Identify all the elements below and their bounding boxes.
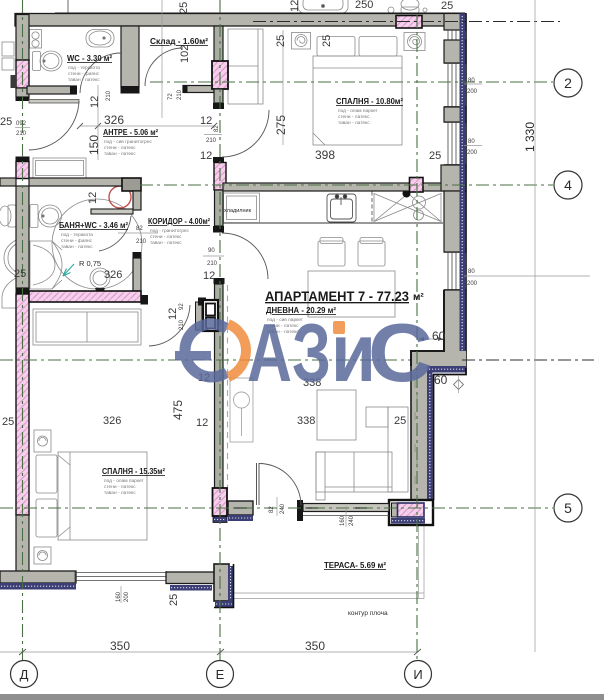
- svg-text:210: 210: [177, 89, 183, 100]
- svg-text:Склад - 1.60м²: Склад - 1.60м²: [150, 37, 208, 46]
- svg-text:хладилник: хладилник: [224, 208, 252, 214]
- svg-text:стени - латекс: стени - латекс: [338, 115, 370, 120]
- svg-text:82: 82: [269, 506, 275, 513]
- svg-text:ТЕРАСА- 5.69 м²: ТЕРАСА- 5.69 м²: [324, 561, 386, 570]
- svg-text:200: 200: [467, 281, 478, 287]
- svg-text:092: 092: [16, 121, 27, 127]
- svg-text:12: 12: [200, 115, 212, 127]
- svg-text:90: 90: [208, 248, 215, 254]
- svg-text:С: С: [368, 306, 433, 399]
- svg-text:25: 25: [0, 116, 12, 128]
- svg-text:92: 92: [179, 303, 185, 310]
- svg-text:стени - латекс: стени - латекс: [104, 146, 136, 151]
- svg-text:12: 12: [289, 0, 301, 12]
- svg-text:80: 80: [468, 269, 475, 275]
- svg-text:12: 12: [196, 417, 208, 429]
- svg-text:60: 60: [432, 329, 446, 343]
- svg-text:таван - латекс: таван - латекс: [61, 245, 93, 250]
- svg-text:под - олам паркет: под - олам паркет: [104, 479, 144, 484]
- svg-text:82: 82: [214, 125, 220, 132]
- svg-text:250: 250: [355, 0, 373, 11]
- svg-text:102: 102: [179, 45, 191, 63]
- svg-text:25: 25: [168, 594, 180, 606]
- svg-text:338: 338: [297, 415, 315, 427]
- svg-text:150: 150: [87, 135, 101, 155]
- svg-text:под - гранитогрес: под - гранитогрес: [150, 229, 190, 234]
- svg-text:326: 326: [103, 415, 121, 427]
- svg-text:240: 240: [280, 503, 286, 514]
- svg-text:5: 5: [564, 500, 572, 516]
- svg-text:12: 12: [87, 192, 99, 204]
- svg-text:350: 350: [305, 639, 325, 653]
- svg-text:25: 25: [275, 35, 287, 47]
- svg-text:82: 82: [136, 226, 143, 232]
- svg-text:под - теракота: под - теракота: [61, 233, 93, 238]
- svg-text:КОРИДОР - 4.00м²: КОРИДОР - 4.00м²: [148, 217, 210, 226]
- svg-text:275: 275: [274, 115, 288, 135]
- svg-text:200: 200: [467, 150, 478, 156]
- svg-text:210: 210: [179, 319, 185, 330]
- svg-text:СПАЛНЯ - 15.35м²: СПАЛНЯ - 15.35м²: [102, 467, 165, 476]
- svg-text:80: 80: [468, 78, 475, 84]
- svg-text:200: 200: [124, 591, 130, 602]
- svg-text:4: 4: [564, 177, 572, 193]
- svg-text:Д: Д: [20, 667, 29, 682]
- svg-text:160: 160: [340, 515, 346, 526]
- svg-text:200: 200: [467, 89, 478, 95]
- svg-text:таван - латекс: таван - латекс: [150, 241, 182, 246]
- svg-text:398: 398: [315, 148, 335, 162]
- svg-text:WC - 3.30 м²: WC - 3.30 м²: [67, 54, 112, 63]
- svg-text:R 0,75: R 0,75: [79, 259, 101, 268]
- svg-text:стени - фаянс: стени - фаянс: [61, 238, 93, 244]
- svg-text:АНТРЕ - 5.06 м²: АНТРЕ - 5.06 м²: [103, 128, 158, 137]
- svg-text:240: 240: [349, 515, 355, 526]
- svg-text:БАНЯ+WC - 3.46 м²: БАНЯ+WC - 3.46 м²: [59, 221, 128, 230]
- svg-text:м²: м²: [413, 292, 424, 303]
- svg-text:60: 60: [434, 373, 448, 387]
- svg-text:475: 475: [171, 400, 185, 420]
- svg-text:12: 12: [167, 308, 179, 320]
- svg-text:стени - латекс: стени - латекс: [150, 235, 182, 240]
- svg-text:под - теракота: под - теракота: [68, 66, 100, 71]
- svg-text:1 330: 1 330: [523, 122, 537, 152]
- svg-text:210: 210: [16, 131, 27, 137]
- svg-text:210: 210: [206, 138, 217, 144]
- svg-text:СПАЛНЯ - 10.80м²: СПАЛНЯ - 10.80м²: [336, 97, 403, 106]
- svg-text:таван - латекс: таван - латекс: [104, 152, 136, 157]
- svg-text:контур плоча: контур плоча: [348, 610, 388, 617]
- svg-text:350: 350: [110, 639, 130, 653]
- svg-text:2: 2: [564, 75, 572, 91]
- svg-text:25: 25: [429, 150, 441, 162]
- svg-text:326: 326: [104, 113, 124, 127]
- svg-text:72: 72: [168, 93, 174, 100]
- svg-text:25: 25: [2, 416, 14, 428]
- svg-text:210: 210: [136, 239, 147, 245]
- svg-text:25: 25: [441, 0, 453, 12]
- svg-text:12: 12: [203, 270, 215, 282]
- svg-text:стени - латекс: стени - латекс: [104, 485, 136, 490]
- svg-text:под - сив гранитогрес: под - сив гранитогрес: [104, 140, 152, 145]
- svg-text:стени - фаянс: стени - фаянс: [68, 71, 100, 77]
- svg-text:326: 326: [104, 269, 122, 281]
- svg-text:АПАРТАМЕНТ 7 - 77.23: АПАРТАМЕНТ 7 - 77.23: [265, 289, 409, 304]
- svg-text:25: 25: [321, 35, 333, 47]
- svg-text:И: И: [413, 667, 422, 682]
- svg-text:80: 80: [468, 139, 475, 145]
- svg-text:210: 210: [106, 90, 112, 101]
- svg-text:25: 25: [14, 268, 26, 280]
- svg-text:25: 25: [178, 2, 190, 14]
- svg-text:таван - латекс: таван - латекс: [104, 491, 136, 496]
- svg-text:Е: Е: [216, 667, 225, 682]
- svg-text:25: 25: [394, 415, 406, 427]
- svg-text:210: 210: [207, 261, 218, 267]
- svg-text:12: 12: [200, 150, 212, 162]
- svg-text:под - олам паркет: под - олам паркет: [338, 109, 378, 114]
- svg-text:таван - латекс: таван - латекс: [68, 78, 100, 83]
- svg-text:12: 12: [89, 96, 101, 108]
- svg-text:АЗ: АЗ: [247, 306, 331, 399]
- svg-text:таван - латекс: таван - латекс: [338, 121, 370, 126]
